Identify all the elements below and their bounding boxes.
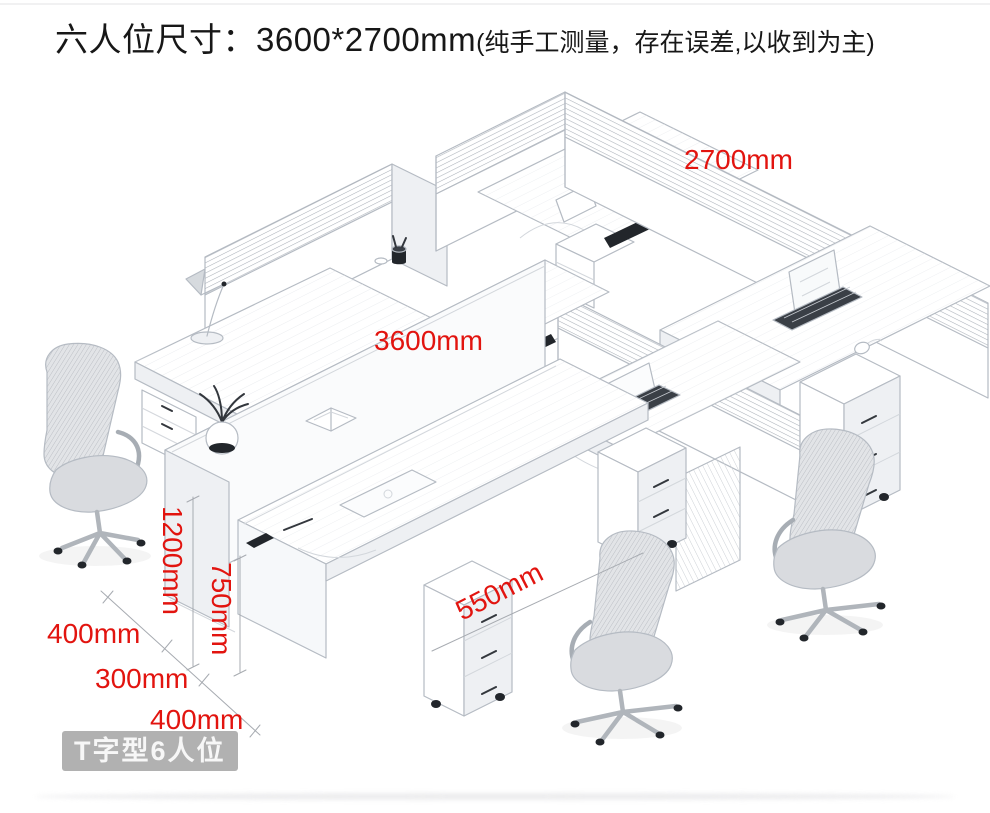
layout-type-badge: T字型6人位 [62,731,238,771]
floor-shadow [35,793,955,800]
label-screen-height: 1200mm [157,506,188,615]
label-depth-a: 400mm [47,618,140,649]
label-total-length: 3600mm [374,325,483,356]
product-dimension-diagram: 六人位尺寸：3600*2700mm(纯手工测量，存在误差,以收到为主) [0,0,990,813]
label-total-width: 2700mm [684,144,793,175]
workstation-sketch: 2700mm 3600mm 1200mm 750mm 550mm 400mm 3… [0,0,990,813]
chair-left [39,343,151,568]
label-desk-height: 750mm [206,562,237,655]
label-depth-b: 300mm [95,663,188,694]
